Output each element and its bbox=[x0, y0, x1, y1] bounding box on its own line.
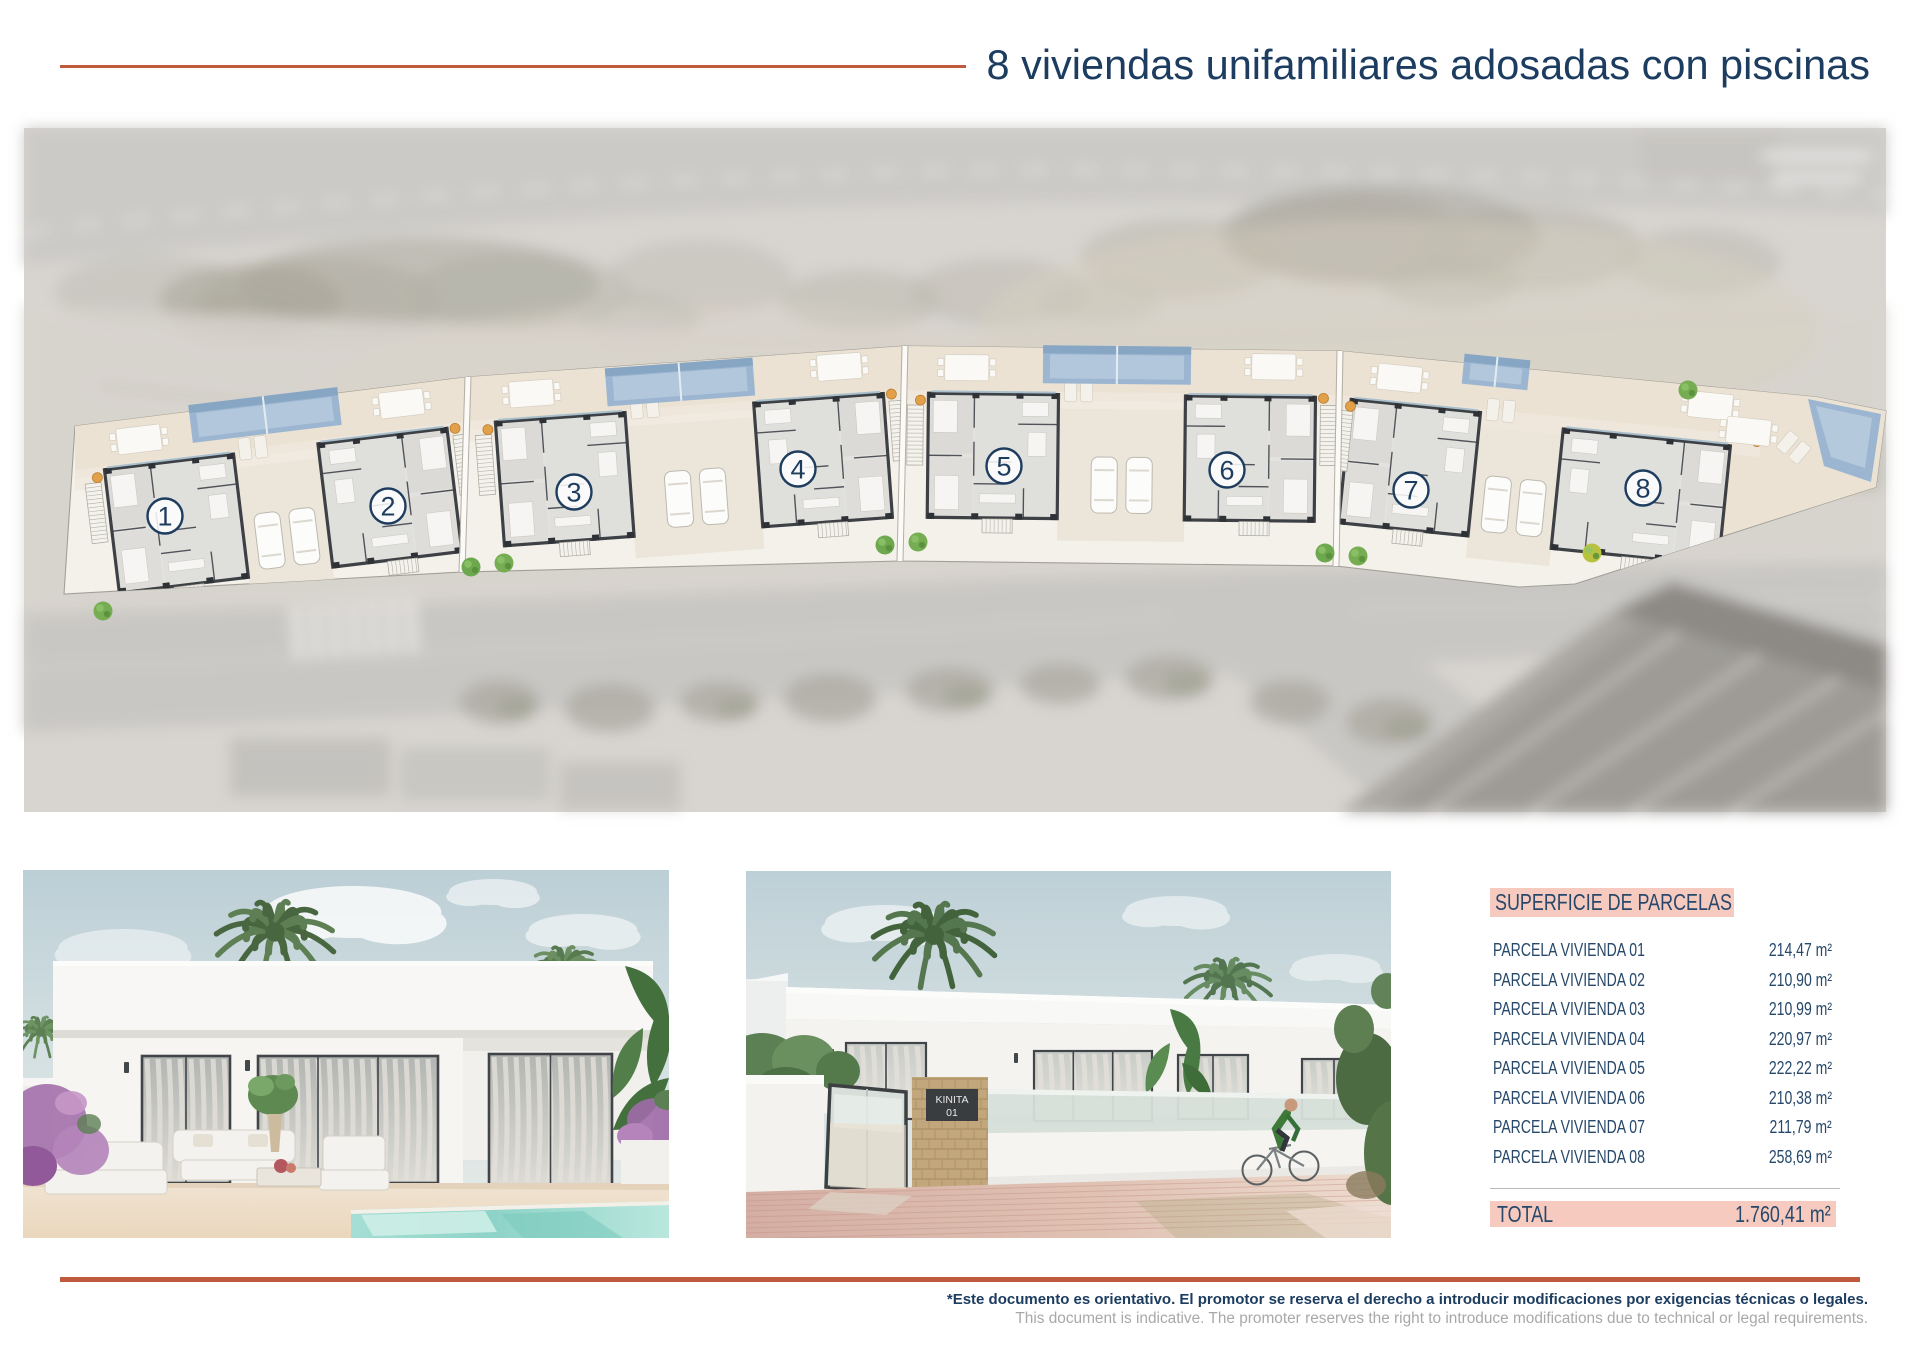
svg-text:3: 3 bbox=[566, 478, 581, 508]
svg-text:5: 5 bbox=[996, 452, 1011, 482]
svg-text:7: 7 bbox=[1403, 476, 1418, 506]
svg-text:6: 6 bbox=[1219, 456, 1234, 486]
svg-text:4: 4 bbox=[790, 455, 805, 485]
svg-text:01: 01 bbox=[946, 1107, 958, 1119]
svg-text:1: 1 bbox=[157, 502, 172, 532]
svg-text:8: 8 bbox=[1635, 474, 1650, 504]
svg-text:KINITA: KINITA bbox=[935, 1094, 968, 1106]
svg-text:2: 2 bbox=[380, 492, 395, 522]
